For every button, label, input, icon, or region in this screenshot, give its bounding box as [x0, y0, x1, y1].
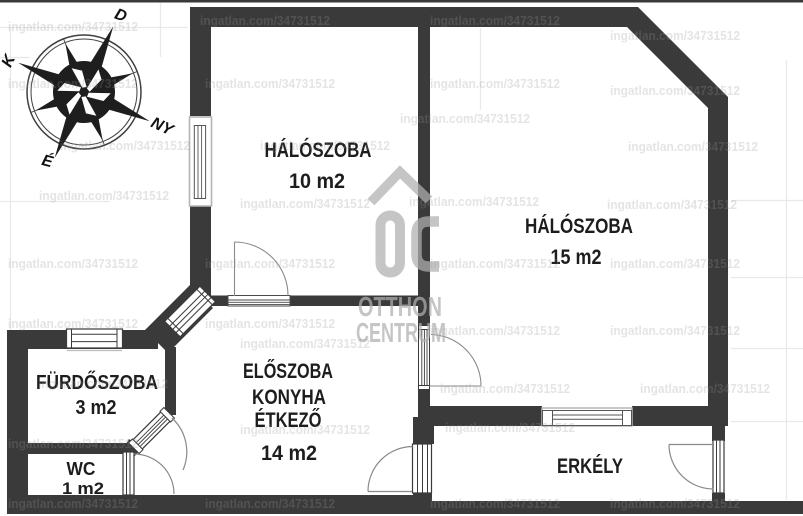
- svg-text:WC: WC: [67, 459, 96, 479]
- svg-text:ingatlan.com/34731512: ingatlan.com/34731512: [60, 138, 190, 153]
- svg-text:ingatlan.com/34731512: ingatlan.com/34731512: [8, 436, 138, 451]
- svg-text:ingatlan.com/34731512: ingatlan.com/34731512: [8, 256, 138, 271]
- svg-text:ingatlan.com/34731512: ingatlan.com/34731512: [430, 323, 560, 338]
- svg-text:KONYHA: KONYHA: [252, 386, 326, 409]
- svg-text:ingatlan.com/34731512: ingatlan.com/34731512: [240, 422, 370, 437]
- svg-text:ingatlan.com/34731512: ingatlan.com/34731512: [610, 256, 740, 271]
- svg-text:ingatlan.com/34731512: ingatlan.com/34731512: [430, 256, 560, 271]
- svg-text:3 m2: 3 m2: [76, 397, 117, 419]
- svg-text:ingatlan.com/34731512: ingatlan.com/34731512: [38, 376, 168, 391]
- svg-text:ingatlan.com/34731512: ingatlan.com/34731512: [240, 336, 370, 351]
- svg-text:14 m2: 14 m2: [261, 442, 317, 465]
- svg-text:ingatlan.com/34731512: ingatlan.com/34731512: [610, 323, 740, 338]
- svg-text:ingatlan.com/34731512: ingatlan.com/34731512: [8, 316, 138, 331]
- svg-text:ingatlan.com/34731512: ingatlan.com/34731512: [628, 139, 758, 154]
- svg-text:ERKÉLY: ERKÉLY: [557, 455, 623, 478]
- svg-text:ingatlan.com/34731512: ingatlan.com/34731512: [260, 138, 390, 153]
- svg-text:ingatlan.com/34731512: ingatlan.com/34731512: [640, 381, 770, 396]
- svg-text:HÁLÓSZOBA: HÁLÓSZOBA: [525, 214, 633, 238]
- svg-text:ingatlan.com/34731512: ingatlan.com/34731512: [607, 197, 737, 212]
- svg-text:ingatlan.com/34731512: ingatlan.com/34731512: [430, 496, 560, 511]
- svg-text:ingatlan.com/34731512: ingatlan.com/34731512: [205, 256, 335, 271]
- svg-text:ingatlan.com/34731512: ingatlan.com/34731512: [8, 19, 138, 34]
- svg-text:ingatlan.com/34731512: ingatlan.com/34731512: [200, 13, 330, 28]
- svg-text:ingatlan.com/34731512: ingatlan.com/34731512: [610, 28, 740, 43]
- svg-text:ELŐSZOBA: ELŐSZOBA: [243, 360, 333, 383]
- svg-text:ingatlan.com/34731512: ingatlan.com/34731512: [430, 13, 560, 28]
- svg-text:ingatlan.com/34731512: ingatlan.com/34731512: [8, 76, 138, 91]
- svg-text:10 m2: 10 m2: [289, 170, 345, 193]
- svg-text:ingatlan.com/34731512: ingatlan.com/34731512: [8, 496, 138, 511]
- svg-text:ingatlan.com/34731512: ingatlan.com/34731512: [430, 76, 560, 91]
- svg-text:ingatlan.com/34731512: ingatlan.com/34731512: [205, 316, 335, 331]
- svg-text:ingatlan.com/34731512: ingatlan.com/34731512: [409, 194, 539, 209]
- svg-text:ingatlan.com/34731512: ingatlan.com/34731512: [400, 111, 530, 126]
- svg-text:ingatlan.com/34731512: ingatlan.com/34731512: [39, 188, 169, 203]
- svg-text:ingatlan.com/34731512: ingatlan.com/34731512: [610, 496, 740, 511]
- svg-text:ingatlan.com/34731512: ingatlan.com/34731512: [445, 420, 575, 435]
- svg-text:ingatlan.com/34731512: ingatlan.com/34731512: [610, 83, 740, 98]
- svg-text:ingatlan.com/34731512: ingatlan.com/34731512: [240, 196, 370, 211]
- svg-text:ingatlan.com/34731512: ingatlan.com/34731512: [205, 496, 335, 511]
- svg-text:ingatlan.com/34731512: ingatlan.com/34731512: [440, 381, 570, 396]
- svg-text:ingatlan.com/34731512: ingatlan.com/34731512: [205, 76, 335, 91]
